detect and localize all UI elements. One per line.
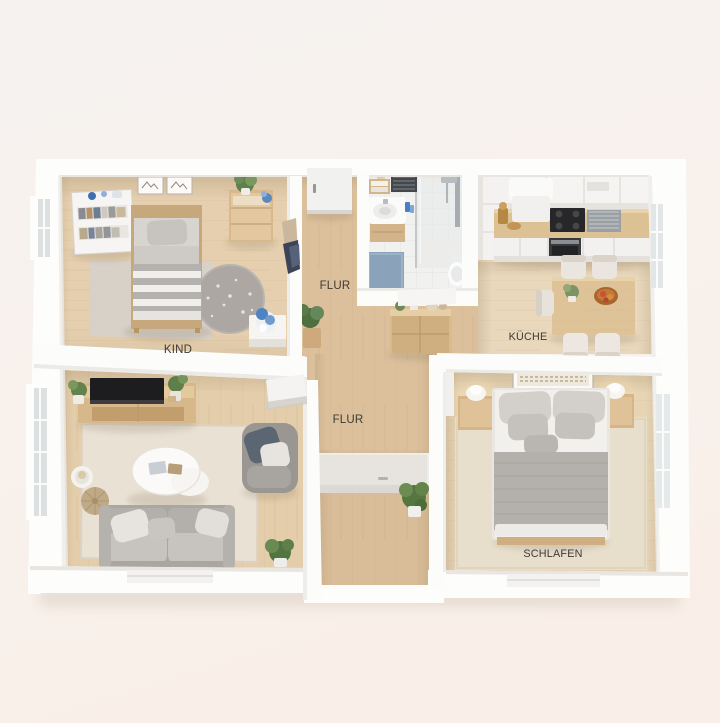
svg-text:KIND: KIND: [164, 344, 192, 356]
svg-text:FLUR: FLUR: [320, 280, 351, 292]
svg-text:KÜCHE: KÜCHE: [509, 331, 548, 343]
svg-text:SCHLAFEN: SCHLAFEN: [523, 548, 582, 560]
svg-text:FLUR: FLUR: [333, 414, 364, 426]
